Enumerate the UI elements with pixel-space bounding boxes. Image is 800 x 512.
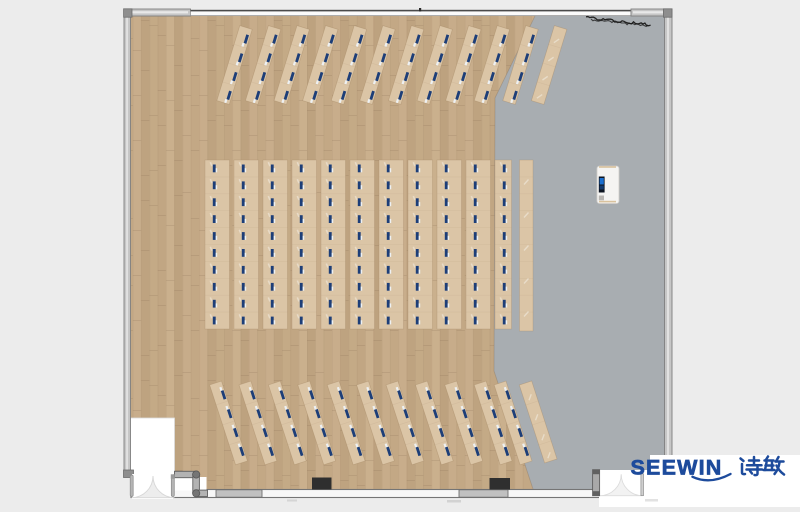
svg-text:SEEWIN: SEEWIN xyxy=(631,456,723,480)
